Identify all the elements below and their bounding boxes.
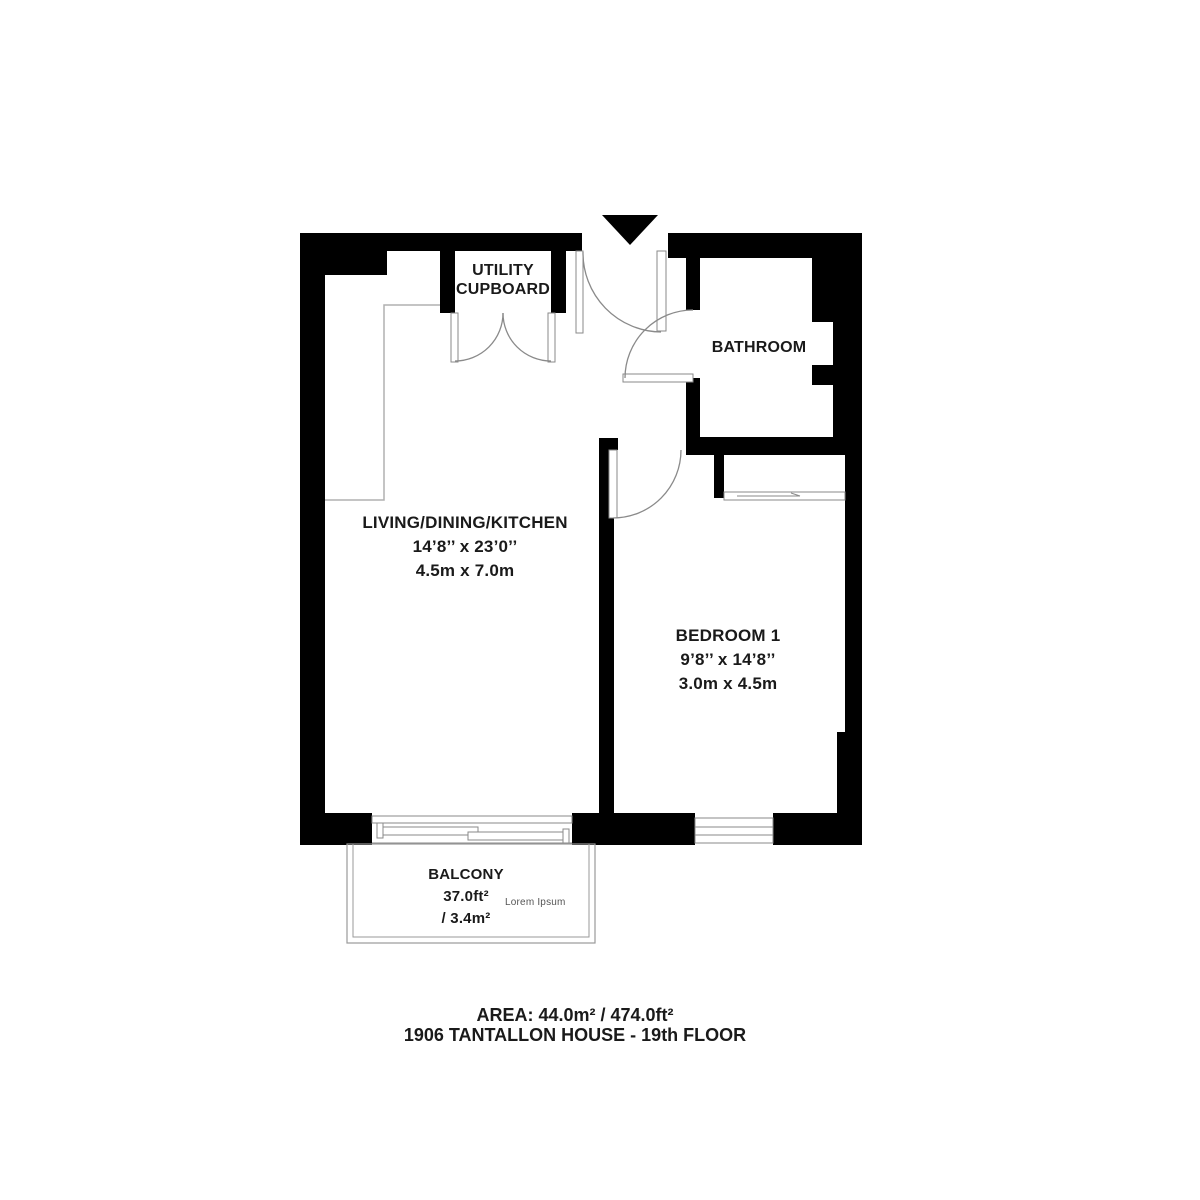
balcony-label: BALCONY 37.0ft² / 3.4m²: [428, 864, 504, 930]
wall-utility-right: [551, 251, 566, 313]
living-label-name: LIVING/DINING/KITCHEN: [362, 511, 567, 535]
utility-door-arc-left: [455, 313, 503, 361]
bedroom-door-swing-arc: [613, 450, 681, 518]
entrance-door-swing-arc: [583, 252, 661, 332]
footer-area-line: AREA: 44.0m² / 474.0ft²: [404, 1005, 746, 1025]
utility-cupboard-label: UTILITY CUPBOARD: [456, 261, 550, 299]
balcony-label-area-m: / 3.4m²: [428, 908, 504, 930]
bathroom-label: BATHROOM: [712, 339, 807, 357]
floorplan-page: UTILITY CUPBOARD BATHROOM LIVING/DINING/…: [0, 0, 1200, 1200]
utility-door-arc-right: [503, 313, 551, 361]
entrance-door-frame: [576, 251, 583, 333]
utility-door-leaf-left: [451, 313, 458, 362]
bedroom-label-dim-metric: 3.0m x 4.5m: [676, 672, 781, 696]
entry-arrow-icon: [602, 215, 658, 245]
wall-bathroom-left-upper: [686, 251, 700, 310]
sliding-door-end-cap-left: [377, 823, 383, 838]
footer-address-line: 1906 TANTALLON HOUSE - 19th FLOOR: [404, 1025, 746, 1045]
living-label-dim-imperial: 14’8’’ x 23’0’’: [362, 535, 567, 559]
balcony-label-area-ft: 37.0ft²: [428, 886, 504, 908]
plan-footer: AREA: 44.0m² / 474.0ft² 1906 TANTALLON H…: [404, 1005, 746, 1045]
sliding-door-track: [372, 816, 572, 823]
wall-utility-left: [440, 251, 455, 313]
wall-bottom-middle: [572, 813, 695, 845]
wall-bathroom-duct-tab: [812, 365, 833, 385]
balcony-label-name: BALCONY: [428, 864, 504, 886]
bedroom-door-leaf: [609, 450, 617, 518]
utility-label-line2: CUPBOARD: [456, 280, 550, 299]
utility-door-leaf-right: [548, 313, 555, 362]
wall-bottom-left: [300, 813, 372, 845]
wall-bathroom-right: [833, 322, 862, 437]
bathroom-label-name: BATHROOM: [712, 339, 807, 357]
utility-label-line1: UTILITY: [456, 261, 550, 280]
kitchen-counter-line: [325, 305, 440, 500]
wall-bottom-right: [773, 813, 862, 845]
bedroom-label-name: BEDROOM 1: [676, 624, 781, 648]
bathroom-door-leaf: [623, 374, 693, 382]
sliding-door-end-cap-right: [563, 829, 569, 843]
bedroom-label-dim-imperial: 9’8’’ x 14’8’’: [676, 648, 781, 672]
wall-right-upper: [845, 455, 862, 732]
wall-right-lower: [837, 732, 862, 813]
living-label-dim-metric: 4.5m x 7.0m: [362, 559, 567, 583]
watermark-text: Lorem Ipsum: [505, 897, 566, 908]
sliding-door-panel-right: [468, 832, 563, 840]
sliding-door-panel-left: [383, 827, 478, 835]
bedroom-label: BEDROOM 1 9’8’’ x 14’8’’ 3.0m x 4.5m: [676, 624, 781, 696]
wall-bedroom-door-jamb: [599, 438, 618, 450]
wall-bathroom-right-block: [812, 258, 862, 322]
living-room-label: LIVING/DINING/KITCHEN 14’8’’ x 23’0’’ 4.…: [362, 511, 567, 583]
wall-bathroom-bottom: [686, 437, 862, 455]
bedroom-window: [695, 818, 773, 843]
wall-left: [300, 233, 325, 845]
